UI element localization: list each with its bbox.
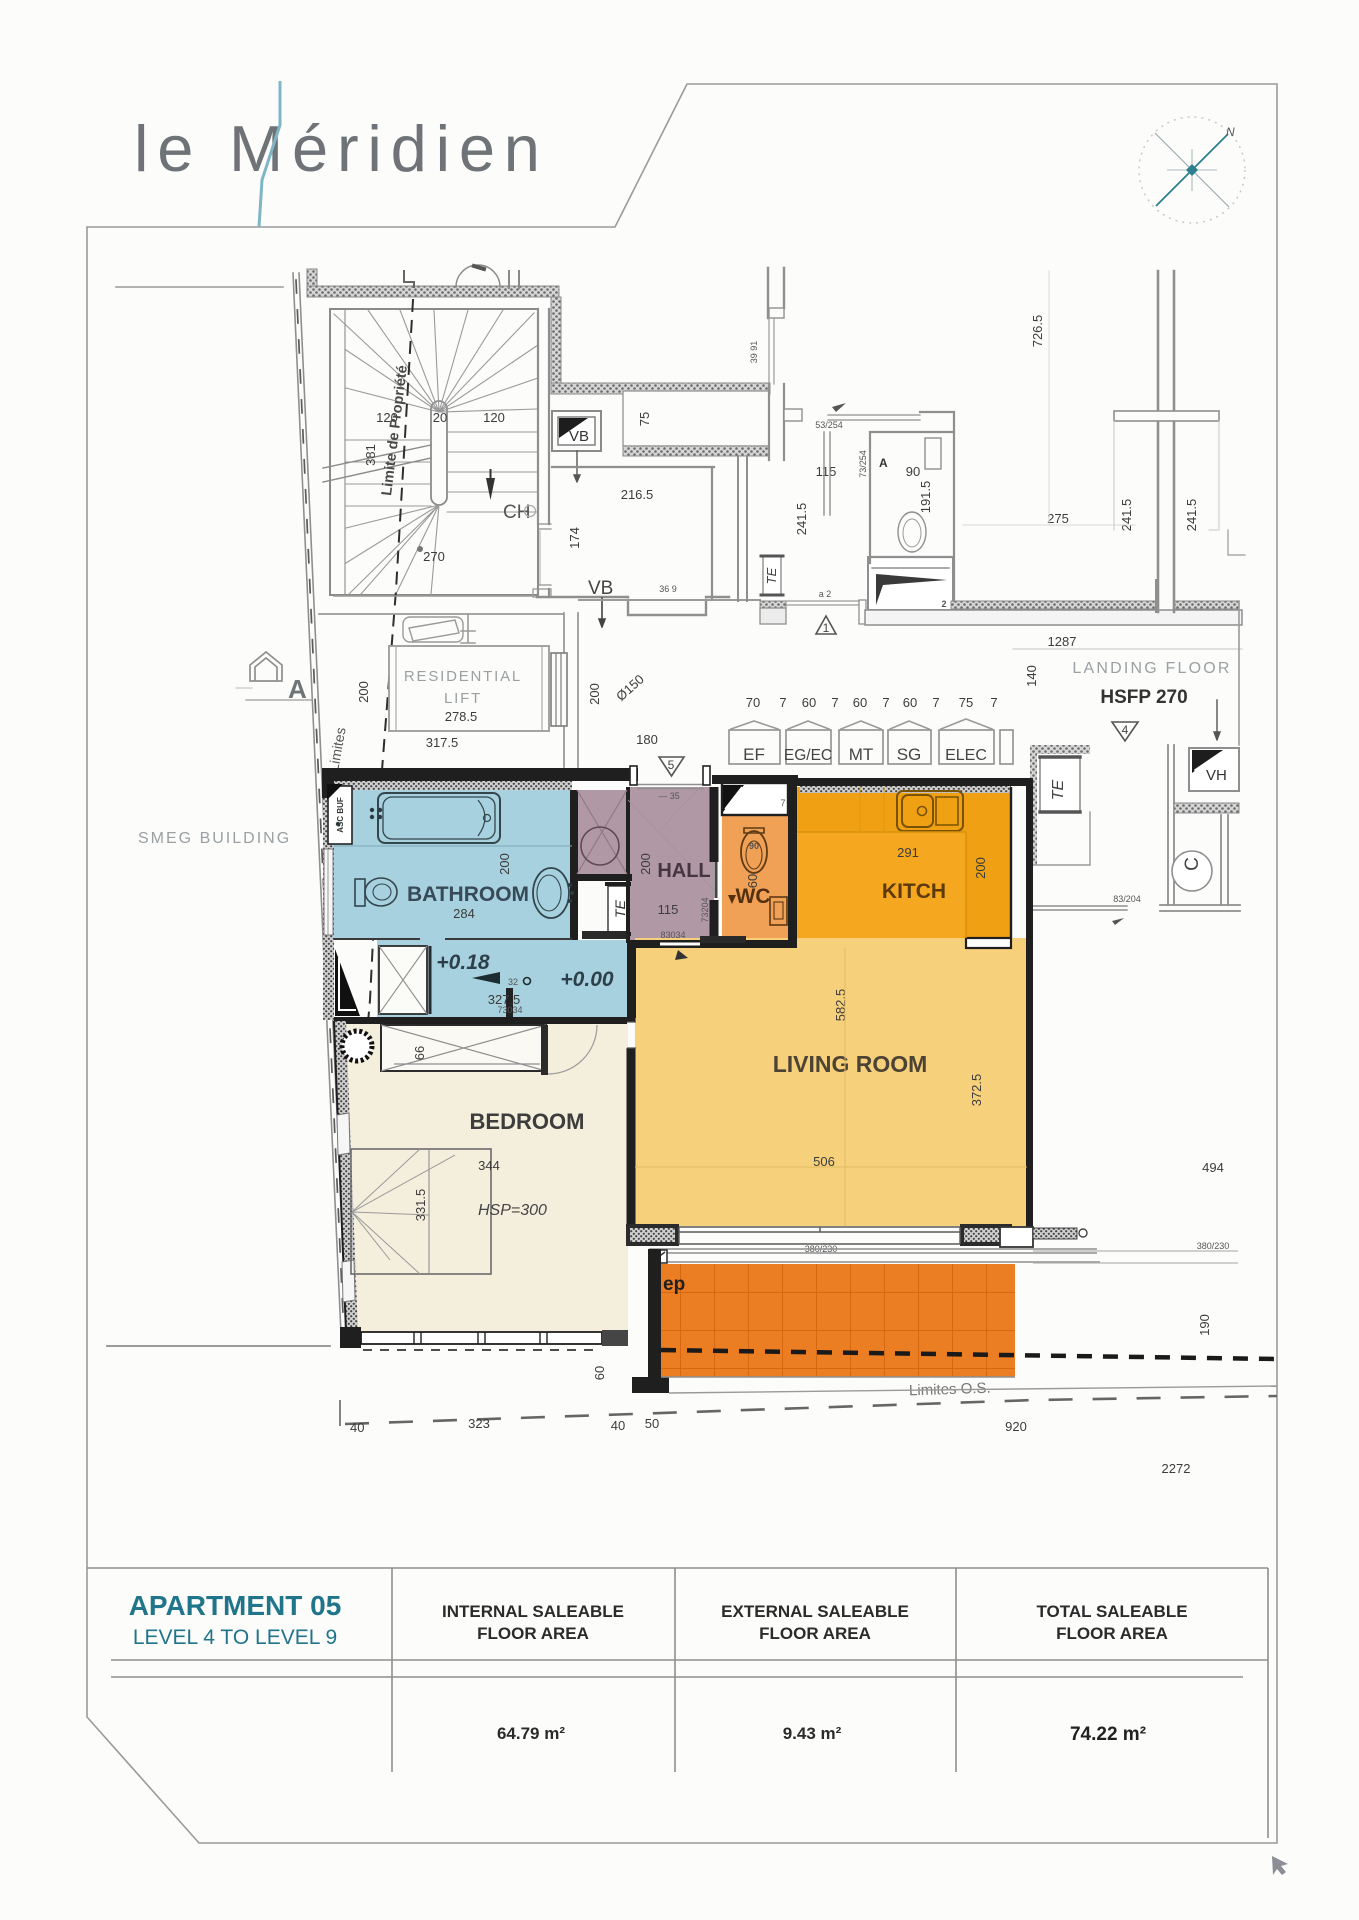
svg-text:SMEG BUILDING: SMEG BUILDING <box>138 830 291 847</box>
svg-text:7: 7 <box>779 695 786 710</box>
svg-text:331.5: 331.5 <box>413 1189 428 1222</box>
svg-text:1287: 1287 <box>1048 634 1077 649</box>
svg-text:317.5: 317.5 <box>426 735 459 750</box>
svg-text:40: 40 <box>611 1418 625 1433</box>
svg-text:75: 75 <box>637 412 652 426</box>
svg-text:VB: VB <box>569 428 589 445</box>
svg-text:115: 115 <box>658 902 679 917</box>
svg-text:241.5: 241.5 <box>1119 499 1134 532</box>
svg-text:7: 7 <box>990 695 997 710</box>
svg-text:64.79 m²: 64.79 m² <box>497 1724 565 1743</box>
svg-text:APARTMENT 05: APARTMENT 05 <box>129 1590 342 1621</box>
svg-text:90: 90 <box>906 464 920 479</box>
svg-text:275: 275 <box>1047 511 1069 526</box>
svg-text:20: 20 <box>433 410 447 425</box>
svg-text:83/204: 83/204 <box>1113 894 1141 904</box>
svg-text:66: 66 <box>412 1046 427 1060</box>
svg-text:60: 60 <box>592 1366 607 1380</box>
svg-text:LIVING ROOM: LIVING ROOM <box>773 1051 928 1077</box>
svg-text:39 91: 39 91 <box>749 341 759 364</box>
svg-text:2272: 2272 <box>1162 1461 1191 1476</box>
svg-text:FLOOR AREA: FLOOR AREA <box>477 1624 589 1643</box>
svg-text:174: 174 <box>567 527 582 549</box>
svg-text:73034: 73034 <box>497 1005 522 1015</box>
svg-text:ep: ep <box>663 1274 685 1295</box>
svg-text:4: 4 <box>1122 723 1129 737</box>
svg-text:BEDROOM: BEDROOM <box>470 1109 585 1134</box>
svg-text:N: N <box>1226 125 1235 139</box>
svg-text:INTERNAL SALEABLE: INTERNAL SALEABLE <box>442 1602 624 1621</box>
svg-text:216.5: 216.5 <box>621 487 654 502</box>
svg-text:344: 344 <box>478 1158 500 1173</box>
svg-text:LEVEL 4 TO LEVEL 9: LEVEL 4 TO LEVEL 9 <box>133 1626 337 1649</box>
svg-text:+0.18: +0.18 <box>436 951 489 974</box>
svg-text:50: 50 <box>645 1416 659 1431</box>
svg-text:40: 40 <box>350 1420 364 1435</box>
svg-text:5: 5 <box>668 758 675 772</box>
svg-text:le Méridien: le Méridien <box>134 112 549 185</box>
svg-text:— 35: — 35 <box>658 791 680 801</box>
svg-text:2: 2 <box>941 599 946 609</box>
svg-text:TE: TE <box>764 567 779 584</box>
svg-text:90: 90 <box>749 841 759 851</box>
svg-text:60: 60 <box>802 695 816 710</box>
svg-text:EXTERNAL SALEABLE: EXTERNAL SALEABLE <box>721 1602 909 1621</box>
svg-text:73204: 73204 <box>700 897 710 922</box>
svg-text:BATHROOM: BATHROOM <box>407 883 529 906</box>
svg-text:SG: SG <box>897 745 922 764</box>
svg-text:190: 190 <box>1197 1314 1212 1336</box>
svg-text:LIFT: LIFT <box>444 690 482 707</box>
svg-text:KITCH: KITCH <box>882 880 946 903</box>
svg-text:200: 200 <box>973 857 988 879</box>
svg-text:200: 200 <box>638 853 653 875</box>
svg-text:73/254: 73/254 <box>858 450 868 478</box>
svg-text:372.5: 372.5 <box>969 1074 984 1107</box>
svg-text:FLOOR AREA: FLOOR AREA <box>759 1624 871 1643</box>
svg-text:494: 494 <box>1202 1160 1224 1175</box>
svg-text:VH: VH <box>1206 767 1227 784</box>
svg-text:726.5: 726.5 <box>1030 315 1045 348</box>
svg-text:200: 200 <box>356 681 371 703</box>
svg-text:7: 7 <box>882 695 889 710</box>
svg-text:7: 7 <box>932 695 939 710</box>
svg-text:270: 270 <box>423 549 445 564</box>
svg-text:120: 120 <box>483 410 505 425</box>
svg-text:32: 32 <box>508 977 518 987</box>
svg-text:RESIDENTIAL: RESIDENTIAL <box>404 668 522 685</box>
svg-text:HSP=300: HSP=300 <box>478 1202 547 1219</box>
svg-text:FLOOR AREA: FLOOR AREA <box>1056 1624 1168 1643</box>
svg-text:MT: MT <box>849 745 874 764</box>
svg-text:140: 140 <box>1024 665 1039 687</box>
svg-text:C: C <box>1182 857 1203 871</box>
svg-text:291: 291 <box>897 845 919 860</box>
svg-text:TE: TE <box>612 899 628 918</box>
svg-text:284: 284 <box>453 906 475 921</box>
svg-text:278.5: 278.5 <box>445 709 478 724</box>
svg-text:ASC BUF: ASC BUF <box>336 797 345 833</box>
svg-text:a 2: a 2 <box>819 589 832 599</box>
svg-text:241.5: 241.5 <box>794 503 809 536</box>
svg-text:CH: CH <box>503 502 530 523</box>
svg-text:EG/EC: EG/EC <box>784 747 832 764</box>
svg-text:200: 200 <box>497 853 512 875</box>
svg-text:53/254: 53/254 <box>815 420 843 430</box>
svg-text:WC: WC <box>736 885 771 908</box>
svg-text:TE: TE <box>1050 779 1067 800</box>
svg-text:83034: 83034 <box>660 930 685 940</box>
svg-text:LANDING FLOOR: LANDING FLOOR <box>1072 660 1231 677</box>
svg-text:7: 7 <box>831 695 838 710</box>
svg-text:7: 7 <box>780 798 785 808</box>
svg-text:323: 323 <box>468 1416 490 1431</box>
svg-text:A: A <box>879 456 888 470</box>
svg-text:200: 200 <box>587 683 602 705</box>
svg-text:191.5: 191.5 <box>918 481 933 514</box>
svg-text:180: 180 <box>636 732 658 747</box>
svg-text:EF: EF <box>743 745 765 764</box>
svg-text:60: 60 <box>903 695 917 710</box>
svg-text:HSFP 270: HSFP 270 <box>1100 687 1187 708</box>
svg-text:HALL: HALL <box>657 860 710 882</box>
svg-text:VB: VB <box>588 578 613 599</box>
svg-text:241.5: 241.5 <box>1184 499 1199 532</box>
svg-text:582.5: 582.5 <box>833 989 848 1022</box>
svg-text:ELEC: ELEC <box>945 747 987 764</box>
svg-text:36 9: 36 9 <box>659 584 677 594</box>
svg-text:TOTAL SALEABLE: TOTAL SALEABLE <box>1036 1602 1187 1621</box>
svg-text:60: 60 <box>853 695 867 710</box>
svg-text:381: 381 <box>363 444 378 466</box>
svg-text:74.22 m²: 74.22 m² <box>1070 1724 1146 1745</box>
svg-text:920: 920 <box>1005 1419 1027 1434</box>
svg-text:70: 70 <box>746 695 760 710</box>
svg-text:75: 75 <box>959 695 973 710</box>
svg-text:1: 1 <box>823 621 830 635</box>
svg-text:115: 115 <box>816 464 837 479</box>
svg-text:9.43 m²: 9.43 m² <box>783 1724 842 1743</box>
svg-text:380/230: 380/230 <box>1197 1241 1230 1251</box>
svg-text:+0.00: +0.00 <box>560 968 613 991</box>
